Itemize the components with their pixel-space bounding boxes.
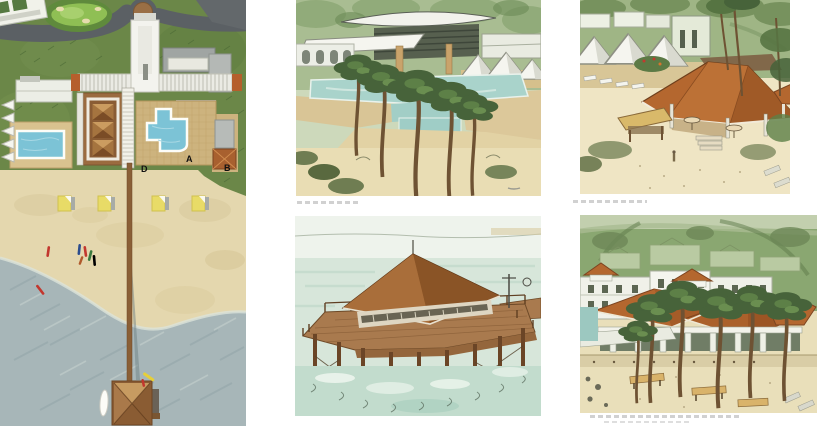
caption-illegible-beach-sketch [573, 200, 647, 203]
boardwalk-spine [122, 88, 134, 168]
main-roof-pavilion [77, 93, 123, 165]
caption-illegible-pool-sketch [297, 201, 359, 204]
sketch-pool-terrace [296, 0, 541, 196]
plan-marker-a: A [186, 155, 193, 164]
presentation-board: D A B [0, 0, 817, 426]
sketch-beach-pavilion [580, 0, 790, 194]
site-plan-panel [0, 0, 246, 426]
colonnade [580, 327, 802, 352]
planter [634, 56, 670, 72]
plan-marker-b: B [224, 164, 231, 173]
entry-steps [696, 136, 722, 150]
lap-pool [17, 131, 64, 158]
caption-illegible-resort-sketch-line1 [590, 415, 742, 418]
site-plan-illustration [0, 0, 246, 426]
promenade [580, 355, 817, 367]
pool-glimpse [580, 307, 598, 341]
sketch-pier-pavilion [295, 216, 541, 416]
sketch-beachfront-buildings [580, 215, 817, 413]
beachfront-buildings-illustration [580, 215, 817, 413]
caption-illegible-resort-sketch-line2 [604, 421, 692, 423]
beach-pavilion-illustration [580, 0, 790, 194]
pool-terrace-illustration [296, 0, 541, 196]
plan-marker-d: D [141, 165, 148, 174]
pier-pavilion-illustration [295, 216, 541, 416]
foreground-water [295, 366, 541, 416]
